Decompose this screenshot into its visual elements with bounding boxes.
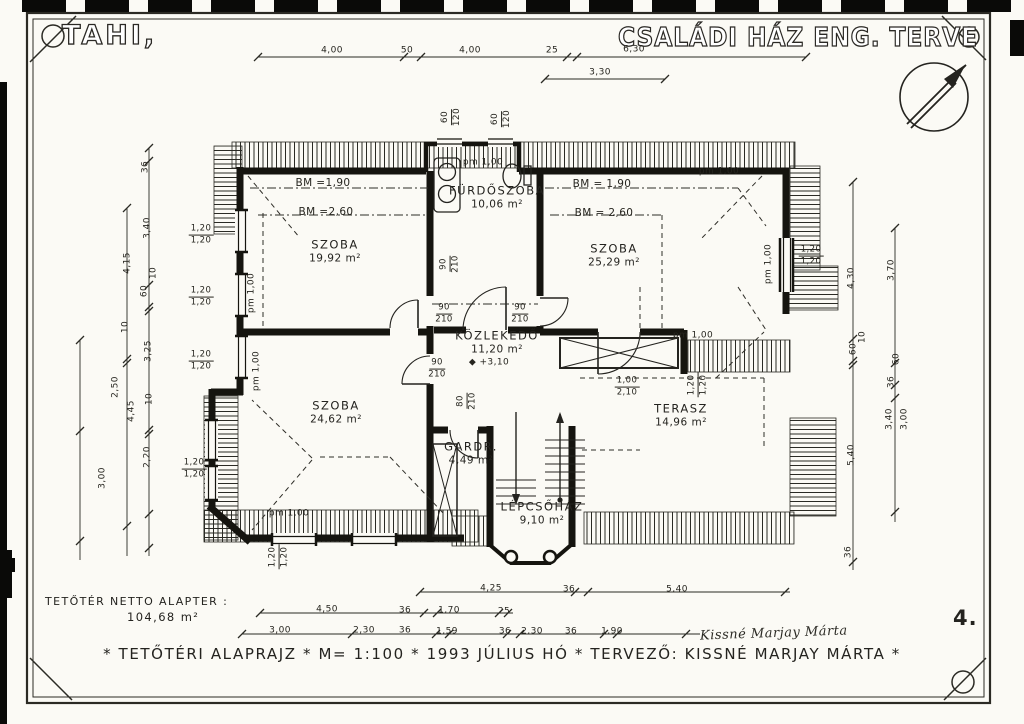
sheet: TAHI, CSALÁDI HÁZ ENG. TERVE SZOBA19,92 … xyxy=(0,0,1024,724)
page-number: 4. xyxy=(953,606,978,630)
location-title: TAHI, xyxy=(62,20,157,51)
title-block-footer: * TETŐTÉRI ALAPRAJZ * M= 1:100 * 1993 JÚ… xyxy=(40,645,964,663)
north-arrow-icon xyxy=(900,63,968,131)
drawing-title: CSALÁDI HÁZ ENG. TERVE xyxy=(618,21,978,53)
railing-and-closet xyxy=(433,338,678,536)
net-area-label: TETŐTÉR NETTO ALAPTER : xyxy=(45,595,228,608)
net-area-value: 104,68 m² xyxy=(127,610,228,624)
net-area-note: TETŐTÉR NETTO ALAPTER : 104,68 m² xyxy=(45,595,228,624)
scanned-blueprint-page: { "sheet": { "location": "TAHI,", "title… xyxy=(0,0,1024,724)
roof-hatch-areas xyxy=(204,142,838,546)
sheet-titles: TAHI, CSALÁDI HÁZ ENG. TERVE xyxy=(62,20,978,53)
